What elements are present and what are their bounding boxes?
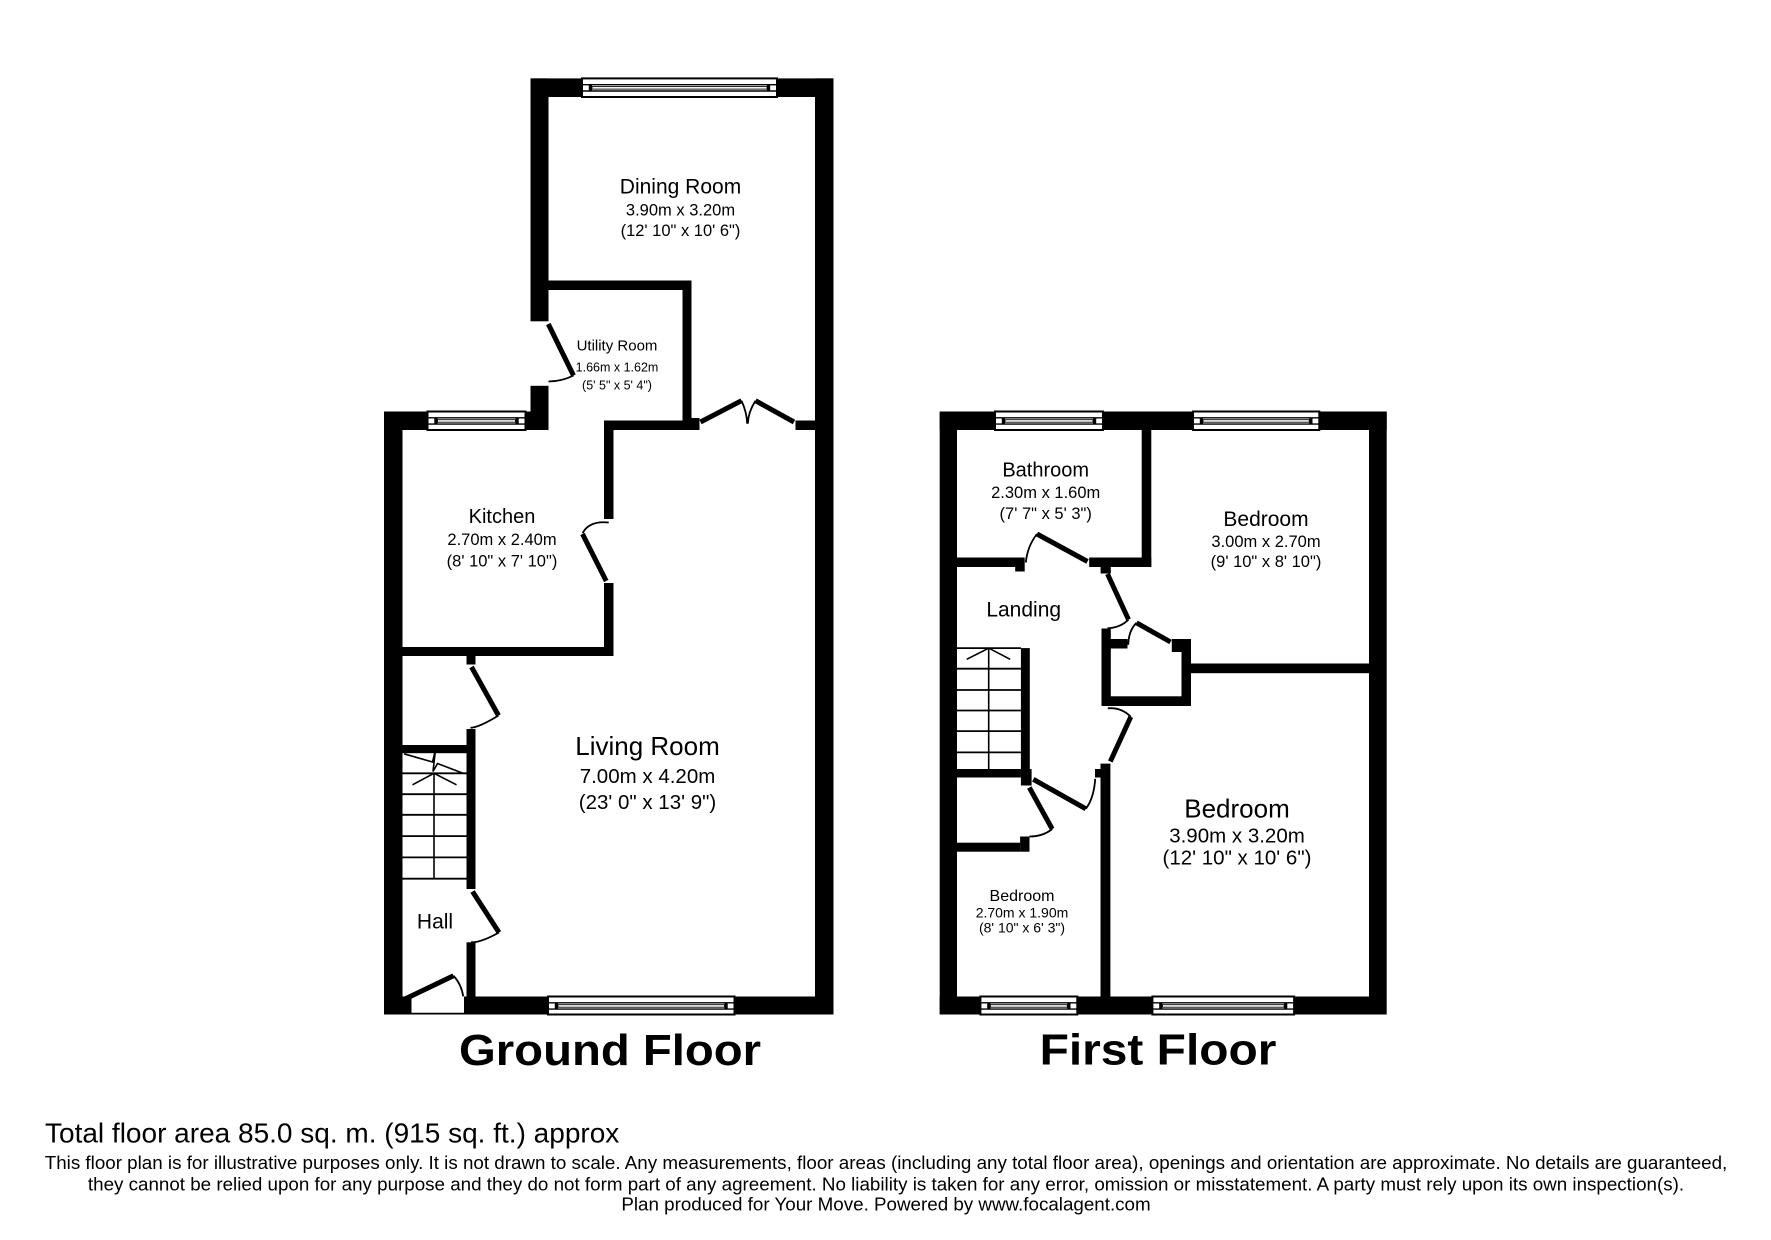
- svg-text:Utility Room: Utility Room: [577, 338, 658, 355]
- svg-text:(9' 10" x 8' 10"): (9' 10" x 8' 10"): [1211, 553, 1322, 571]
- svg-text:Bathroom: Bathroom: [1002, 459, 1089, 481]
- svg-text:Total floor area 85.0 sq. m. (: Total floor area 85.0 sq. m. (915 sq. ft…: [45, 1118, 619, 1149]
- svg-text:First Floor: First Floor: [1040, 1024, 1277, 1074]
- svg-text:3.90m x 3.20m: 3.90m x 3.20m: [626, 201, 735, 219]
- svg-text:Kitchen: Kitchen: [469, 506, 536, 528]
- svg-text:This floor plan is for illustr: This floor plan is for illustrative purp…: [45, 1152, 1728, 1173]
- svg-text:Plan produced for Your Move. P: Plan produced for Your Move. Powered by …: [621, 1194, 1150, 1215]
- svg-text:Hall: Hall: [417, 910, 453, 933]
- svg-text:2.30m x 1.60m: 2.30m x 1.60m: [991, 484, 1100, 502]
- svg-text:7.00m x 4.20m: 7.00m x 4.20m: [580, 765, 716, 788]
- svg-text:(7' 7" x 5' 3"): (7' 7" x 5' 3"): [1000, 505, 1092, 523]
- svg-text:Bedroom: Bedroom: [1184, 793, 1290, 823]
- svg-text:(23' 0" x 13' 9"): (23' 0" x 13' 9"): [579, 791, 716, 814]
- svg-text:2.70m x 1.90m: 2.70m x 1.90m: [976, 905, 1069, 921]
- svg-text:Landing: Landing: [986, 599, 1061, 622]
- svg-text:(5' 5" x 5' 4"): (5' 5" x 5' 4"): [582, 379, 652, 393]
- svg-text:2.70m x 2.40m: 2.70m x 2.40m: [447, 531, 556, 549]
- svg-text:Dining Room: Dining Room: [620, 175, 741, 198]
- svg-text:Bedroom: Bedroom: [990, 888, 1055, 905]
- svg-text:they cannot be relied upon for: they cannot be relied upon for any purpo…: [88, 1174, 1684, 1195]
- svg-text:1.66m x 1.62m: 1.66m x 1.62m: [576, 360, 659, 374]
- svg-text:(8' 10" x 7' 10"): (8' 10" x 7' 10"): [447, 553, 558, 571]
- svg-text:Living Room: Living Room: [575, 731, 720, 761]
- svg-text:Bedroom: Bedroom: [1223, 508, 1308, 531]
- svg-text:3.00m x 2.70m: 3.00m x 2.70m: [1211, 533, 1320, 551]
- svg-text:(12' 10" x 10' 6"): (12' 10" x 10' 6"): [1163, 847, 1312, 870]
- svg-text:(12' 10" x 10' 6"): (12' 10" x 10' 6"): [621, 222, 741, 240]
- svg-text:Ground Floor: Ground Floor: [459, 1026, 761, 1075]
- svg-text:(8' 10" x 6' 3"): (8' 10" x 6' 3"): [979, 919, 1065, 935]
- svg-text:3.90m x 3.20m: 3.90m x 3.20m: [1169, 824, 1305, 847]
